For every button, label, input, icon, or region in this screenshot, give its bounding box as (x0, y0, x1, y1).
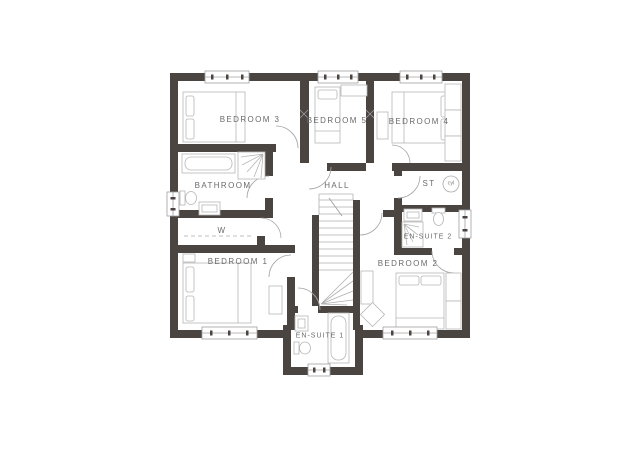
wardrobe-bedroom2 (446, 273, 461, 329)
room-label-store: ST (422, 180, 435, 188)
room-label-bedroom4: BEDROOM 4 (389, 118, 450, 126)
door-bedroom3 (276, 126, 298, 148)
sink-bathroom (199, 202, 220, 215)
toilet-ensuite1 (294, 342, 311, 354)
floor-plan-drawing (0, 0, 640, 452)
room-label-bedroom1: BEDROOM 1 (208, 258, 269, 266)
toilet-bathroom (180, 191, 197, 205)
bed-bedroom2 (396, 273, 444, 329)
room-label-ensuite2: EN-SUITE 2 (404, 234, 453, 241)
window-bathroom (167, 192, 179, 216)
room-label-hall: HALL (324, 182, 350, 190)
sink-ensuite2 (404, 209, 422, 221)
dresser-bedroom5 (341, 85, 367, 96)
door-wardrobe (261, 218, 281, 238)
drawers-bedroom2 (361, 271, 373, 304)
wardrobe-bedroom1 (269, 286, 282, 314)
chair-bedroom2 (360, 302, 384, 326)
room-label-bathroom: BATHROOM (195, 182, 252, 190)
sink-ensuite1 (295, 316, 308, 331)
door-bedroom4 (392, 145, 410, 163)
window-bedroom2 (383, 327, 437, 339)
door-bedroom1 (269, 255, 291, 277)
window-bedroom1 (202, 327, 257, 339)
room-label-bedroom3: BEDROOM 3 (220, 116, 281, 124)
window-bedroom3 (205, 71, 249, 83)
room-label-bedroom5: BEDROOM 5 (307, 117, 368, 125)
window-ensuite1 (308, 364, 330, 376)
room-label-wardrobe: W (218, 227, 227, 235)
toilet-ensuite2 (432, 208, 445, 226)
cylinder-label: cyl (448, 181, 455, 187)
staircase (319, 194, 353, 305)
door-store (398, 176, 420, 198)
window-bedroom4 (400, 71, 442, 83)
window-ensuite2 (459, 210, 471, 238)
bedside-bedroom1 (183, 254, 195, 262)
bed-bedroom5 (315, 87, 340, 143)
floor-plan-canvas: BEDROOM 3 BEDROOM 5 BEDROOM 4 BATHROOM H… (0, 0, 640, 452)
window-bedroom5 (318, 71, 358, 83)
door-bedroom2 (360, 213, 382, 235)
bathtub-bathroom (182, 154, 235, 173)
room-label-ensuite1: EN-SUITE 1 (296, 333, 345, 340)
bed-bedroom1 (183, 263, 251, 323)
room-label-bedroom2: BEDROOM 2 (378, 260, 439, 268)
shower-bathroom (238, 152, 265, 179)
